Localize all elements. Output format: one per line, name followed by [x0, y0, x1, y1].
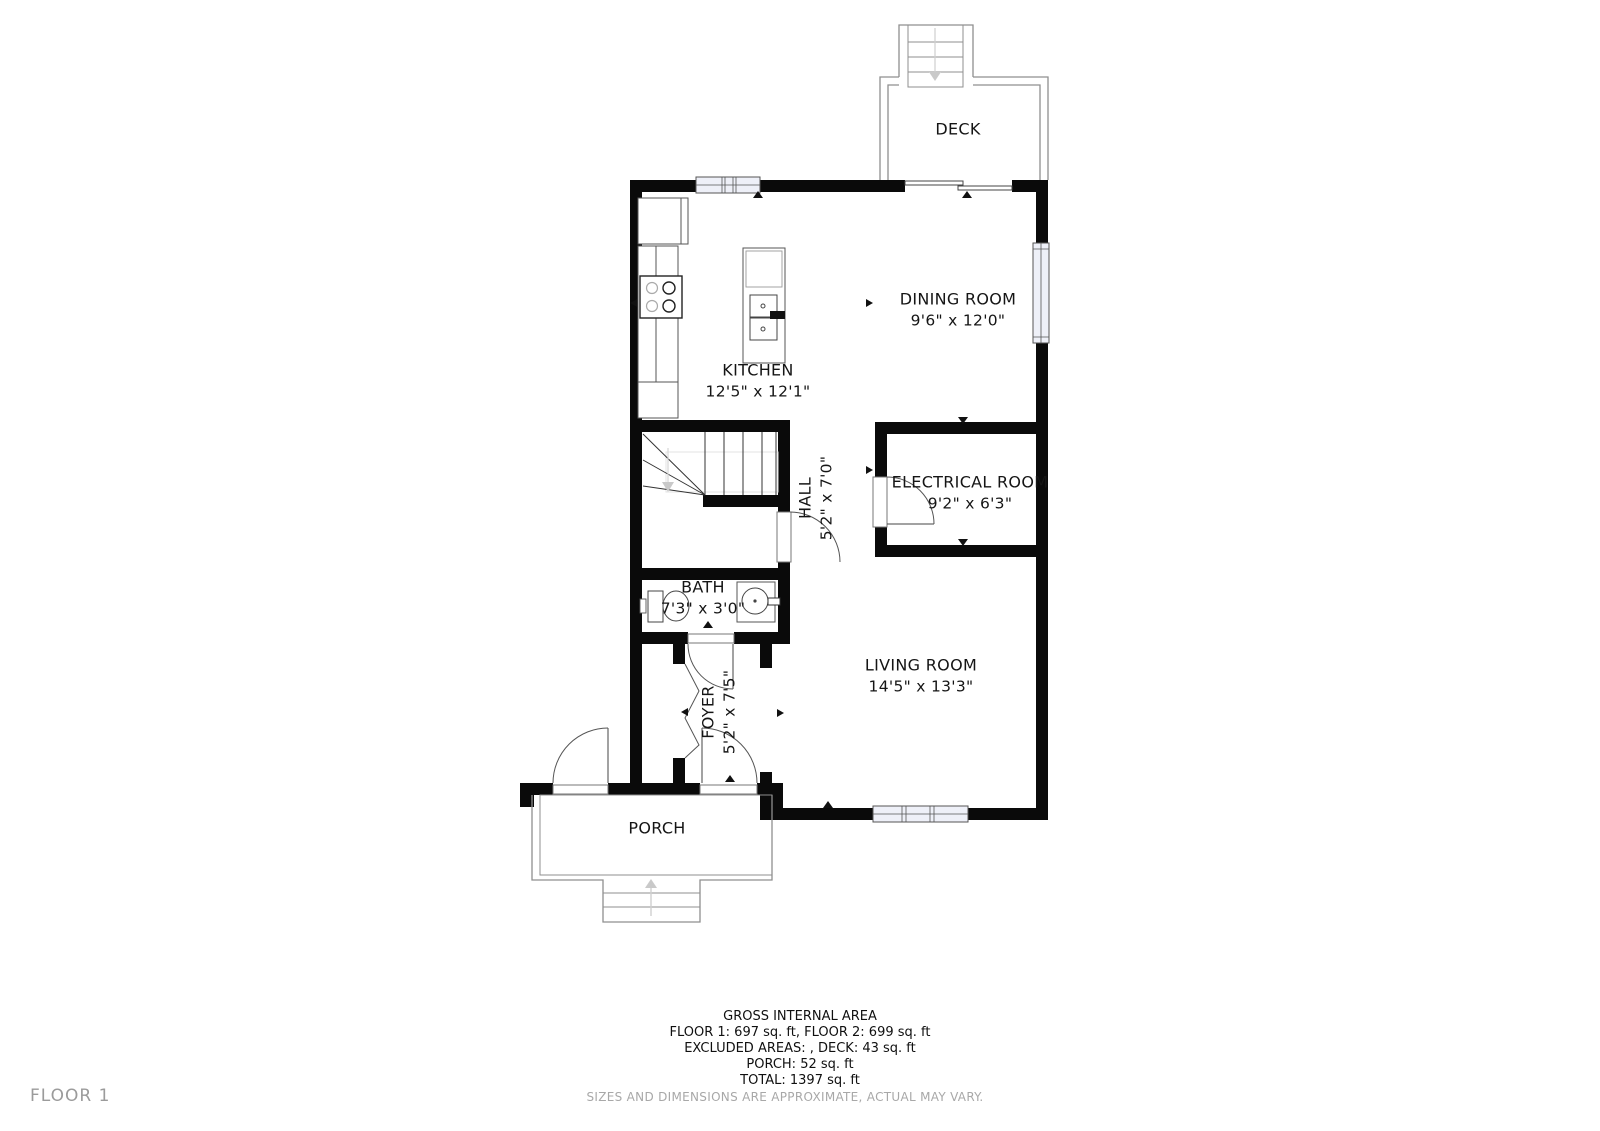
stove — [640, 276, 682, 318]
room-dimensions: 9'2" x 6'3" — [892, 493, 1049, 513]
room-label-porch: PORCH — [628, 819, 685, 840]
room-dimensions: 14'5" x 13'3" — [865, 676, 977, 696]
summary-total: TOTAL: 1397 sq. ft — [0, 1073, 1600, 1089]
area-summary: GROSS INTERNAL AREA FLOOR 1: 697 sq. ft,… — [0, 1009, 1600, 1089]
sink-faucet — [768, 598, 780, 605]
summary-porch: PORCH: 52 sq. ft — [0, 1057, 1600, 1073]
floorplan-page: DECK DINING ROOM 9'6" x 12'0" KITCHEN 12… — [0, 0, 1600, 1131]
room-name: LIVING ROOM — [865, 656, 977, 677]
porch-stairs — [603, 879, 700, 916]
deck-sliding-door — [905, 181, 1012, 190]
deck-stairs — [899, 25, 973, 87]
room-name: HALL — [796, 456, 817, 541]
room-dimensions: 5'2" x 7'5" — [719, 670, 739, 755]
room-label-bath: BATH 7'3" x 3'0" — [661, 578, 746, 619]
room-name: ELECTRICAL ROOM — [892, 473, 1049, 494]
summary-excluded: EXCLUDED AREAS: , DECK: 43 sq. ft — [0, 1041, 1600, 1057]
summary-title: GROSS INTERNAL AREA — [0, 1009, 1600, 1025]
room-name: DINING ROOM — [900, 290, 1017, 311]
room-name: FOYER — [699, 670, 720, 755]
kitchen-island — [743, 248, 785, 363]
room-dimensions: 12'5" x 12'1" — [706, 381, 811, 401]
floorplan-drawing — [0, 0, 1600, 1131]
kitchen-counter — [638, 246, 678, 418]
kitchen-window — [696, 177, 760, 193]
room-name: PORCH — [628, 819, 685, 840]
deck-stairs-down-arrow — [929, 72, 941, 81]
disclaimer-text: SIZES AND DIMENSIONS ARE APPROXIMATE, AC… — [0, 1090, 1570, 1104]
room-dimensions: 9'6" x 12'0" — [900, 310, 1017, 330]
living-room-window — [873, 806, 968, 822]
room-label-electrical: ELECTRICAL ROOM 9'2" x 6'3" — [892, 473, 1049, 514]
room-dimensions: 5'2" x 7'0" — [816, 456, 836, 541]
room-label-hall: HALL 5'2" x 7'0" — [796, 456, 837, 541]
room-name: BATH — [661, 578, 746, 599]
porch-side-door — [553, 728, 608, 794]
porch-stairs-up-arrow — [645, 879, 657, 888]
room-name: KITCHEN — [706, 361, 811, 382]
refrigerator — [638, 198, 688, 244]
summary-floors: FLOOR 1: 697 sq. ft, FLOOR 2: 699 sq. ft — [0, 1025, 1600, 1041]
porch-outline — [532, 795, 772, 922]
dining-window — [1033, 243, 1049, 343]
room-name: DECK — [935, 120, 980, 141]
room-label-dining: DINING ROOM 9'6" x 12'0" — [900, 290, 1017, 331]
room-label-kitchen: KITCHEN 12'5" x 12'1" — [706, 361, 811, 402]
room-label-deck: DECK — [935, 120, 980, 141]
island-faucet — [770, 311, 785, 319]
room-dimensions: 7'3" x 3'0" — [661, 598, 746, 618]
interior-stairs — [643, 432, 778, 495]
room-label-foyer: FOYER 5'2" x 7'5" — [699, 670, 740, 755]
room-label-living: LIVING ROOM 14'5" x 13'3" — [865, 656, 977, 697]
